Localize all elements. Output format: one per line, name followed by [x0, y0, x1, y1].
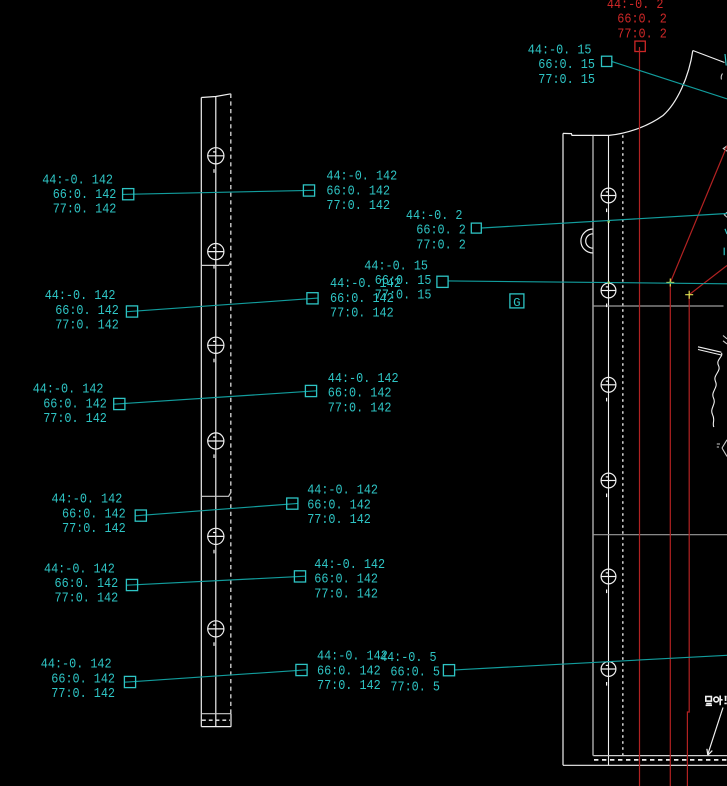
svg-text:66:0. 142: 66:0. 142	[62, 507, 126, 522]
svg-text:77:0. 142: 77:0. 142	[51, 687, 115, 702]
svg-text:77:0. 142: 77:0. 142	[55, 319, 119, 334]
svg-text:44:-0. 2: 44:-0. 2	[406, 209, 463, 224]
svg-text:66:0. 142: 66:0. 142	[51, 672, 115, 687]
svg-text:66:0. 142: 66:0. 142	[55, 304, 119, 319]
svg-text:77:0. 5: 77:0. 5	[390, 680, 440, 695]
svg-text:44:-0. 142: 44:-0. 142	[42, 173, 113, 188]
svg-text:77:0. 142: 77:0. 142	[330, 307, 394, 322]
svg-text:66:0. 5: 66:0. 5	[390, 666, 440, 681]
svg-text:77:0. 142: 77:0. 142	[307, 513, 371, 528]
svg-text:44:-0. 2: 44:-0. 2	[607, 0, 664, 13]
svg-text:44:-0. 142: 44:-0. 142	[317, 650, 388, 665]
svg-text:66:0. 142: 66:0. 142	[328, 387, 392, 402]
svg-text:44:-0. 142: 44:-0. 142	[52, 493, 123, 508]
svg-text:44:-0. 15: 44:-0. 15	[364, 259, 428, 274]
svg-text:66:0. 142: 66:0. 142	[43, 397, 107, 412]
svg-text:44:-0. 142: 44:-0. 142	[44, 562, 115, 577]
svg-text:77:0. 15: 77:0. 15	[538, 73, 595, 88]
svg-text:66:0. 142: 66:0. 142	[314, 573, 378, 588]
svg-text:77:0. 2: 77:0. 2	[617, 27, 667, 42]
svg-text:77:0. 142: 77:0. 142	[55, 592, 119, 607]
svg-text:66:0. 142: 66:0. 142	[326, 184, 390, 199]
svg-text:77:0. 142: 77:0. 142	[314, 587, 378, 602]
svg-text:77:0. 142: 77:0. 142	[62, 522, 126, 537]
svg-text:44:-0. 142: 44:-0. 142	[328, 372, 399, 387]
svg-text:77:0. 142: 77:0. 142	[328, 401, 392, 416]
svg-text:44:-0. 142: 44:-0. 142	[326, 170, 397, 185]
svg-text:77:0. 2: 77:0. 2	[416, 238, 466, 253]
svg-text:66:0. 2: 66:0. 2	[617, 13, 667, 28]
svg-text:44:-0. 142: 44:-0. 142	[33, 383, 104, 398]
svg-text:66:0. 142: 66:0. 142	[53, 188, 117, 203]
svg-text:77:0. 142: 77:0. 142	[43, 412, 107, 427]
svg-text:66:0. 142: 66:0. 142	[307, 498, 371, 513]
svg-text:44:-0. 142: 44:-0. 142	[41, 658, 112, 673]
svg-text:44:-0. 142: 44:-0. 142	[45, 289, 116, 304]
svg-text:77:0. 142: 77:0. 142	[53, 203, 117, 218]
svg-text:77:0. 15: 77:0. 15	[375, 289, 432, 304]
svg-text:66:0. 2: 66:0. 2	[416, 224, 466, 239]
svg-text:44:-0. 142: 44:-0. 142	[307, 484, 378, 499]
svg-text:77:0. 142: 77:0. 142	[317, 679, 381, 694]
svg-text:66:0. 15: 66:0. 15	[375, 274, 432, 289]
svg-text:66:0. 15: 66:0. 15	[538, 58, 595, 73]
svg-text:66:0. 142: 66:0. 142	[317, 664, 381, 679]
svg-text:44:-0. 142: 44:-0. 142	[314, 558, 385, 573]
svg-text:44:-0. 5: 44:-0. 5	[380, 651, 437, 666]
svg-text:44:-0. 15: 44:-0. 15	[528, 44, 592, 59]
svg-text:66:0. 142: 66:0. 142	[55, 577, 119, 592]
svg-text:G: G	[513, 296, 520, 310]
svg-text:77:0. 142: 77:0. 142	[326, 199, 390, 214]
